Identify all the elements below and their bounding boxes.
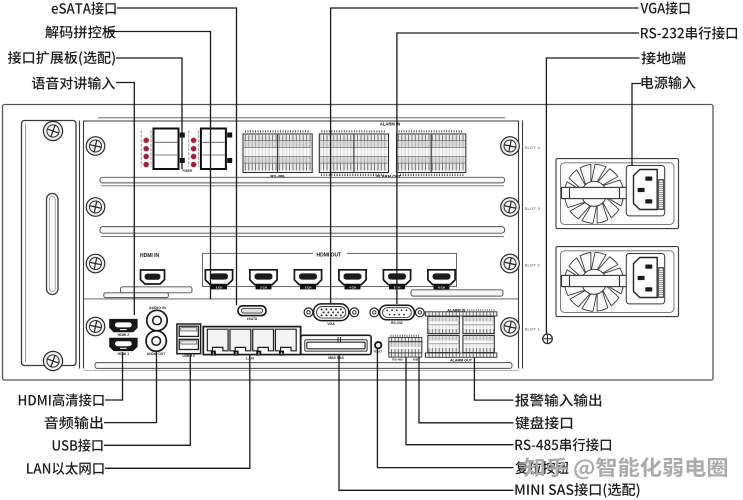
svg-text:RS-485: RS-485 (392, 357, 403, 361)
svg-text:HDMI OUT: HDMI OUT (317, 253, 342, 259)
svg-text:4 CH: 4 CH (349, 285, 356, 289)
svg-text:1: 1 (213, 352, 215, 356)
svg-text:FIBER: FIBER (183, 169, 194, 173)
svg-text:HDMI 2: HDMI 2 (118, 333, 130, 337)
svg-text:SLOT 1: SLOT 1 (525, 327, 541, 332)
svg-text:3: 3 (258, 352, 260, 356)
svg-text:ALARM OUT: ALARM OUT (450, 358, 473, 362)
svg-text:MINI SAS: MINI SAS (328, 356, 344, 360)
svg-text:SLOT 2: SLOT 2 (525, 263, 541, 268)
svg-text:USB 3.0: USB 3.0 (182, 354, 195, 358)
svg-text:2 CH: 2 CH (260, 285, 267, 289)
svg-text:RS-232: RS-232 (391, 321, 403, 325)
svg-text:6 CH: 6 CH (438, 285, 445, 289)
svg-text:1 CH: 1 CH (216, 285, 223, 289)
svg-text:eSATA: eSATA (247, 317, 258, 321)
svg-text:3 CH: 3 CH (305, 285, 312, 289)
svg-text:2: 2 (235, 352, 237, 356)
svg-text:HDMI 1: HDMI 1 (118, 352, 130, 356)
svg-text:HDMI IN: HDMI IN (140, 253, 160, 259)
svg-text:SLOT 4: SLOT 4 (525, 145, 541, 150)
svg-text:K/B: K/B (413, 357, 419, 361)
svg-text:AUDIO IN: AUDIO IN (149, 306, 166, 310)
svg-text:4: 4 (281, 352, 283, 356)
svg-text:RESET: RESET (374, 350, 383, 354)
svg-text:SLOT 3: SLOT 3 (525, 206, 541, 211)
svg-text:VGA: VGA (327, 322, 335, 326)
